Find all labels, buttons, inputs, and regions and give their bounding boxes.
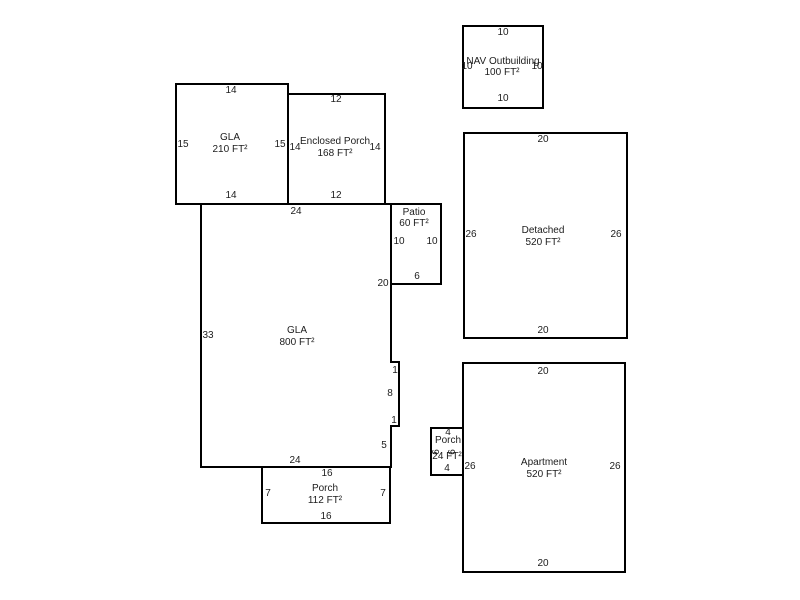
porch-112-dim-top: 16: [321, 469, 332, 479]
detached-dim-top: 20: [537, 135, 548, 145]
gla-800-dim-notch-side: 8: [387, 389, 393, 399]
patio-dim-left: 10: [393, 237, 404, 247]
floorplan-sketch: NAV Outbuilding 100 FT² 10 10 10 10 GLA …: [0, 0, 800, 600]
enclosed-porch-dim-bottom: 12: [330, 191, 341, 201]
gla-800-dim-right-lower: 5: [381, 441, 387, 451]
apartment-label: Apartment: [521, 458, 567, 468]
detached-dim-bottom: 20: [537, 326, 548, 336]
apartment-area: 520 FT²: [526, 470, 561, 480]
nav-outbuilding-dim-left: 10: [461, 62, 472, 72]
porch-112-label: Porch: [312, 484, 338, 494]
apartment-dim-bottom: 20: [537, 559, 548, 569]
gla-210-area: 210 FT²: [212, 145, 247, 155]
patio-dim-right: 10: [426, 237, 437, 247]
porch-24-dim-top: 4: [445, 428, 451, 438]
gla-800-dim-left: 33: [202, 331, 213, 341]
apartment-dim-left: 26: [464, 462, 475, 472]
gla-210-dim-top: 14: [225, 86, 236, 96]
patio-area: 60 FT²: [399, 219, 428, 229]
detached-dim-left: 26: [465, 230, 476, 240]
patio-dim-bottom: 6: [414, 272, 420, 282]
gla-800-dim-bottom: 24: [289, 456, 300, 466]
gla-800-dim-top: 24: [290, 207, 301, 217]
nav-outbuilding-dim-right: 10: [531, 62, 542, 72]
enclosed-porch-dim-top: 12: [330, 95, 341, 105]
porch-24-dim-right: 6: [448, 449, 458, 455]
gla-800-area: 800 FT²: [279, 338, 314, 348]
detached-area: 520 FT²: [525, 238, 560, 248]
nav-outbuilding-dim-top: 10: [497, 28, 508, 38]
gla-800-label: GLA: [287, 326, 307, 336]
gla-800-dim-right-upper: 20: [377, 279, 388, 289]
porch-112-dim-bottom: 16: [320, 512, 331, 522]
porch-24-dim-left: 6: [432, 449, 442, 455]
nav-outbuilding-dim-bottom: 10: [497, 94, 508, 104]
porch-24-dim-bottom: 4: [444, 464, 450, 474]
enclosed-porch-dim-left: 14: [289, 143, 300, 153]
nav-outbuilding-label: NAV Outbuilding: [466, 57, 539, 67]
enclosed-porch-area: 168 FT²: [317, 149, 352, 159]
gla-210-label: GLA: [220, 133, 240, 143]
nav-outbuilding-area: 100 FT²: [484, 68, 519, 78]
enclosed-porch-dim-right: 14: [369, 143, 380, 153]
gla-210-dim-left: 15: [177, 140, 188, 150]
porch-112-dim-left: 7: [265, 489, 271, 499]
detached-dim-right: 26: [610, 230, 621, 240]
apartment-dim-top: 20: [537, 367, 548, 377]
floorplan-outlines: [0, 0, 800, 600]
enclosed-porch-label: Enclosed Porch: [300, 137, 370, 147]
porch-112-area: 112 FT²: [308, 496, 342, 506]
gla-800-dim-notch-bottom: 1: [391, 416, 397, 426]
porch-112-dim-right: 7: [380, 489, 386, 499]
detached-label: Detached: [522, 226, 565, 236]
apartment-dim-right: 26: [609, 462, 620, 472]
gla-210-dim-bottom: 14: [225, 191, 236, 201]
gla-800-dim-notch-top: 1: [392, 366, 398, 376]
patio-label: Patio: [403, 208, 426, 218]
gla-210-dim-right: 15: [274, 140, 285, 150]
